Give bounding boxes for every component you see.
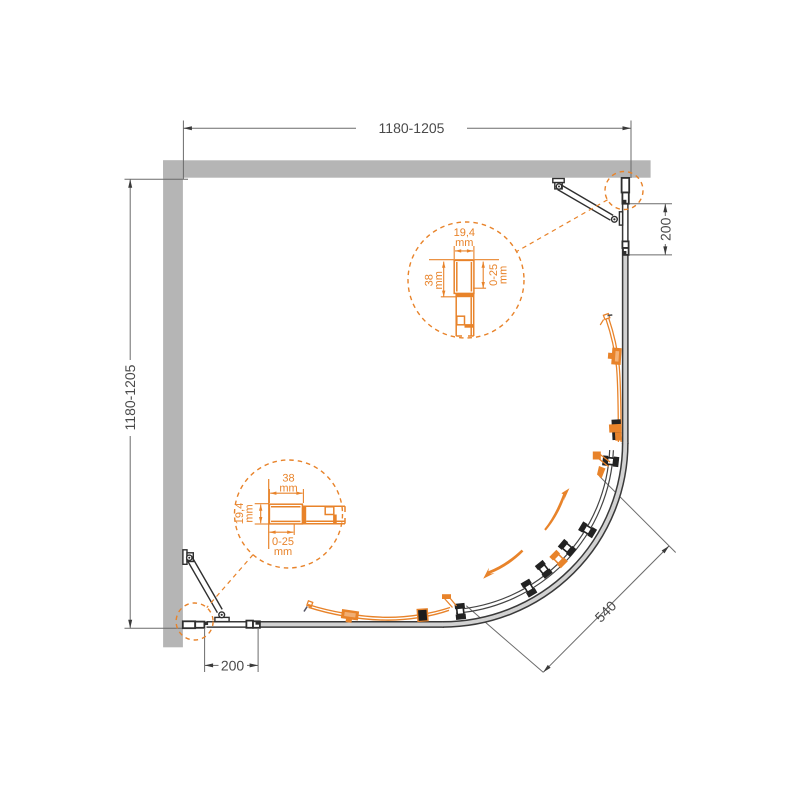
- svg-text:1180-1205: 1180-1205: [379, 120, 445, 136]
- svg-text:mm: mm: [498, 266, 510, 284]
- svg-text:mm: mm: [279, 483, 297, 495]
- svg-text:mm: mm: [455, 237, 473, 249]
- svg-text:1180-1205: 1180-1205: [122, 364, 138, 430]
- svg-text:200: 200: [657, 217, 673, 241]
- svg-text:mm: mm: [433, 271, 445, 289]
- svg-text:mm: mm: [243, 504, 255, 522]
- svg-text:200: 200: [221, 657, 245, 673]
- svg-text:mm: mm: [274, 546, 292, 558]
